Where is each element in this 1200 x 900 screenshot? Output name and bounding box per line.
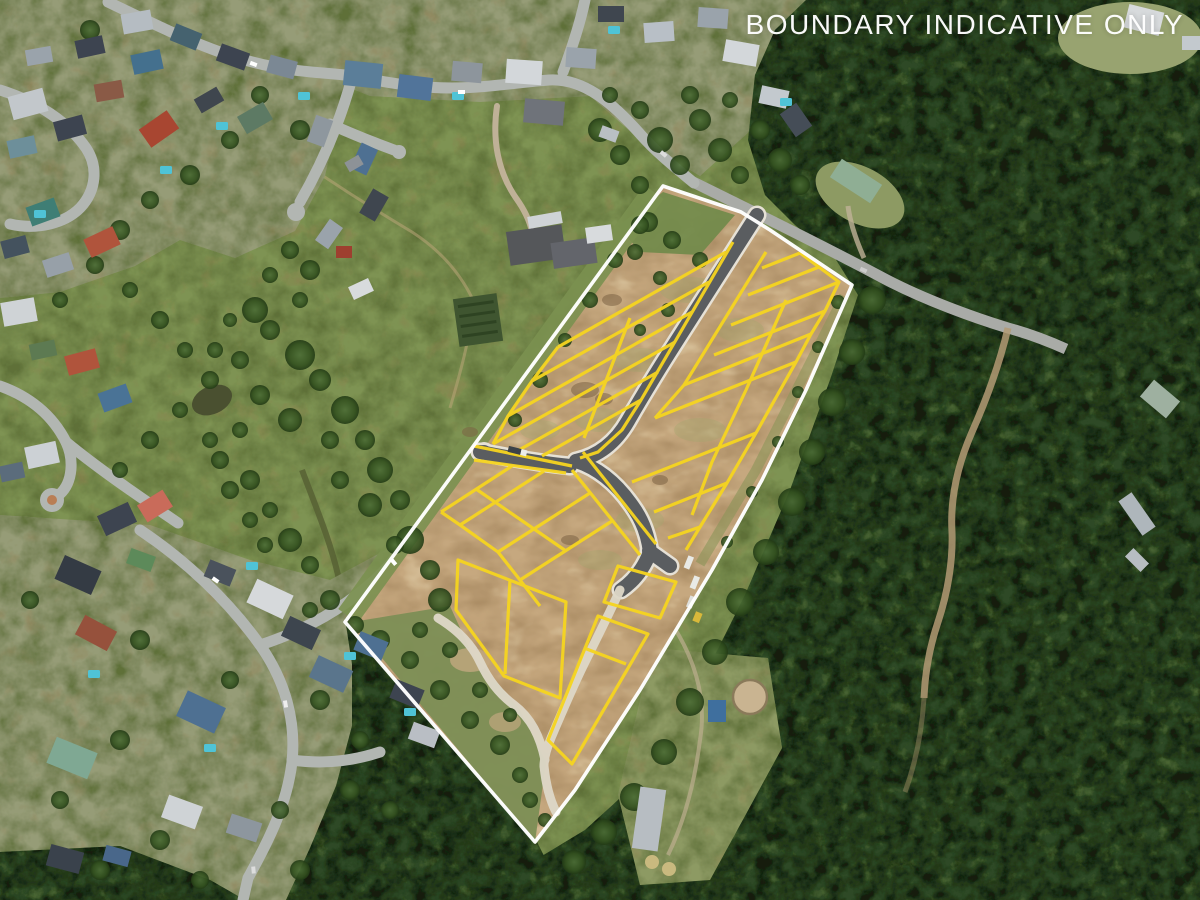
swimming-pool bbox=[404, 708, 416, 716]
house-roof bbox=[1182, 36, 1200, 50]
swimming-pool bbox=[344, 652, 356, 660]
aerial-photo: BOUNDARY INDICATIVE ONLY bbox=[0, 0, 1200, 900]
round-yard bbox=[733, 680, 767, 714]
swimming-pool bbox=[780, 98, 792, 106]
aerial-photo-canvas bbox=[0, 0, 1200, 900]
swimming-pool bbox=[34, 210, 46, 218]
house-roof bbox=[523, 98, 565, 125]
tank bbox=[645, 855, 659, 869]
swimming-pool bbox=[216, 122, 228, 130]
house-roof bbox=[697, 7, 728, 29]
house-roof bbox=[505, 59, 543, 85]
swimming-pool bbox=[160, 166, 172, 174]
tank bbox=[662, 862, 676, 876]
cul-de-sac bbox=[392, 145, 406, 159]
house-roof bbox=[397, 74, 434, 101]
house-roof bbox=[565, 47, 596, 69]
house-roof bbox=[343, 60, 383, 89]
swimming-pool bbox=[204, 744, 216, 752]
house-roof bbox=[598, 6, 624, 22]
house-roof bbox=[336, 246, 352, 258]
garden-plot bbox=[453, 293, 503, 347]
cul-de-sac bbox=[287, 203, 305, 221]
house-roof bbox=[643, 21, 674, 43]
boundary-disclaimer-text: BOUNDARY INDICATIVE ONLY bbox=[746, 9, 1184, 41]
car bbox=[251, 866, 256, 873]
house-roof bbox=[708, 700, 726, 722]
swimming-pool bbox=[298, 92, 310, 100]
swimming-pool bbox=[608, 26, 620, 34]
swimming-pool bbox=[88, 670, 100, 678]
car bbox=[458, 90, 465, 94]
house-roof bbox=[451, 61, 483, 84]
swimming-pool bbox=[246, 562, 258, 570]
